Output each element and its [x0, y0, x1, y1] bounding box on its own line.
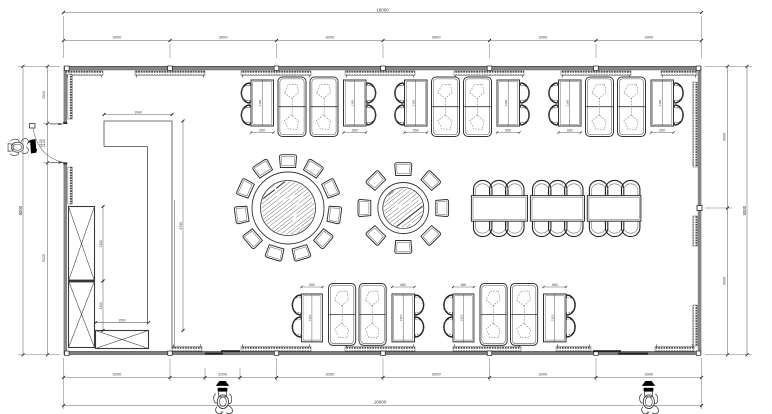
svg-text:4000: 4000: [723, 133, 727, 141]
svg-text:4000: 4000: [723, 277, 727, 285]
svg-text:1540: 1540: [42, 91, 46, 99]
svg-text:3000: 3000: [644, 372, 654, 377]
svg-text:650: 650: [259, 129, 265, 133]
svg-text:650: 650: [413, 129, 419, 133]
svg-text:5325: 5325: [42, 254, 46, 262]
svg-text:3000: 3000: [644, 35, 654, 40]
svg-text:2100: 2100: [99, 240, 103, 247]
svg-text:1400: 1400: [99, 302, 103, 309]
svg-text:650: 650: [309, 283, 315, 287]
svg-text:1940: 1940: [134, 110, 142, 114]
svg-text:3000: 3000: [325, 35, 335, 40]
svg-text:3000: 3000: [432, 372, 442, 377]
svg-text:3000: 3000: [112, 372, 122, 377]
svg-text:18000: 18000: [376, 7, 389, 12]
svg-text:650: 650: [461, 283, 467, 287]
svg-text:650: 650: [552, 283, 558, 287]
svg-text:3000: 3000: [325, 372, 335, 377]
svg-text:8000: 8000: [742, 205, 747, 215]
svg-text:1135: 1135: [42, 139, 46, 147]
svg-text:3000: 3000: [219, 35, 229, 40]
svg-text:1000: 1000: [218, 372, 228, 377]
svg-text:3000: 3000: [538, 35, 548, 40]
svg-text:3000: 3000: [538, 372, 548, 377]
svg-text:5745: 5745: [179, 222, 183, 230]
svg-text:650: 650: [400, 283, 406, 287]
svg-text:1500: 1500: [118, 319, 125, 323]
svg-text:650: 650: [505, 129, 511, 133]
svg-text:3000: 3000: [432, 35, 442, 40]
svg-text:650: 650: [352, 129, 358, 133]
svg-text:8000: 8000: [18, 205, 23, 215]
svg-text:3000: 3000: [112, 35, 122, 40]
svg-text:650: 650: [659, 129, 665, 133]
svg-text:650: 650: [567, 129, 573, 133]
svg-text:18000: 18000: [374, 400, 387, 405]
